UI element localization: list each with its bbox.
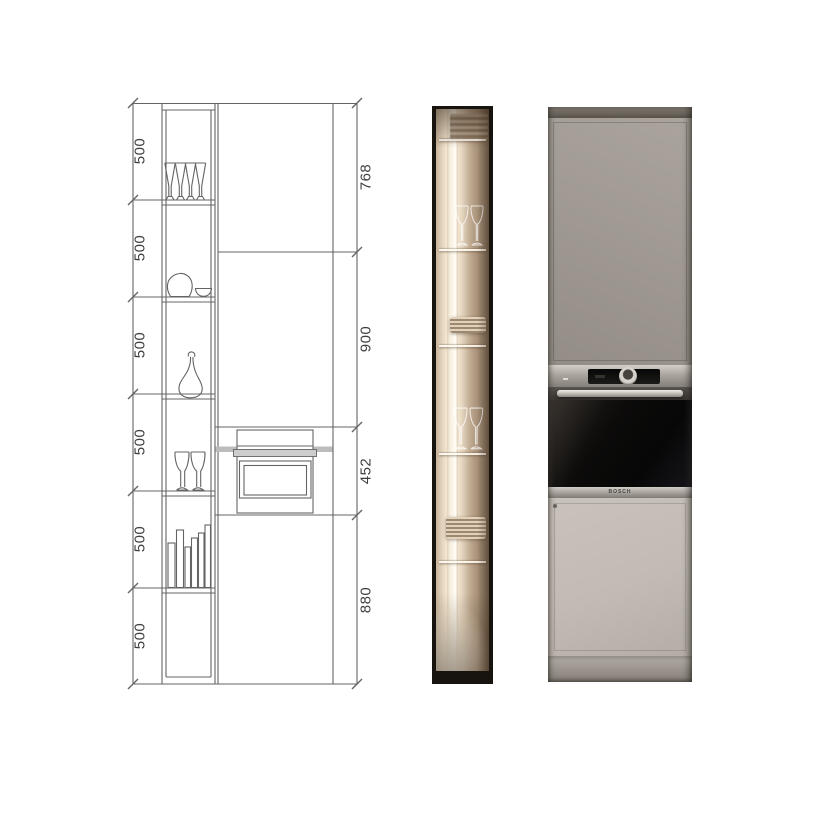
cabinet-plinth <box>548 656 692 682</box>
cabinet-outline <box>215 103 357 684</box>
oven-handle-area <box>548 387 692 400</box>
dim-label-left-2: 500 <box>132 235 149 262</box>
glass-reflection <box>548 400 692 487</box>
books-icon <box>168 525 211 588</box>
upper-cabinet-door <box>548 118 692 365</box>
glass-shelf <box>439 345 486 347</box>
glass-shelf <box>439 453 486 455</box>
lower-cabinet-door <box>548 498 692 656</box>
floor-light-glow <box>436 607 489 671</box>
oven-glass-door <box>548 400 692 487</box>
dim-label-left-4: 500 <box>132 429 149 456</box>
display-column-photo <box>432 106 493 684</box>
oven-cabinet-photo: BOSCH <box>548 107 692 682</box>
dim-label-left-5: 500 <box>132 526 149 553</box>
dim-label-left-3: 500 <box>132 332 149 359</box>
dim-label-right-768: 768 <box>358 164 375 191</box>
display-segment <box>595 375 605 378</box>
oven-brand-strip: BOSCH <box>548 487 692 498</box>
plate-stack <box>450 317 486 333</box>
door-panel-edge <box>554 503 686 651</box>
door-panel-edge <box>553 122 687 361</box>
wine-glasses-icon <box>452 407 486 453</box>
dim-label-right-900: 900 <box>358 326 375 353</box>
dim-label-right-452: 452 <box>358 458 375 485</box>
wine-glasses-icon <box>175 452 205 490</box>
interior-shading <box>436 109 489 671</box>
decanter-icon <box>179 352 202 398</box>
champagne-flutes-icon <box>165 163 206 200</box>
bowl-and-dish-icon <box>167 273 211 296</box>
panel-indicator-light <box>563 378 568 380</box>
stacked-dishes-top <box>450 114 488 140</box>
dim-label-left-1: 500 <box>132 138 149 165</box>
display-frame <box>432 106 493 684</box>
oven-handle-bar <box>557 390 683 397</box>
screenshot-canvas: 500 500 500 500 500 500 768 900 452 880 <box>0 0 840 840</box>
bosch-logo: BOSCH <box>548 490 692 495</box>
cabinet-crown-trim <box>548 107 692 118</box>
elevation-linework <box>0 0 840 840</box>
oven-control-panel <box>548 365 692 387</box>
oven-outline <box>216 430 333 513</box>
wine-glasses-icon <box>454 205 486 249</box>
glass-shelf <box>439 561 486 563</box>
shelf-column-outline <box>133 103 215 684</box>
glass-shelf <box>439 139 486 141</box>
display-interior <box>436 109 489 671</box>
glass-shelf <box>439 249 486 251</box>
led-strip-light <box>447 109 458 671</box>
door-hinge-dot <box>553 504 557 508</box>
oven-knob <box>619 367 637 385</box>
dim-label-left-6: 500 <box>132 623 149 650</box>
plate-stack <box>446 517 486 539</box>
dim-label-right-880: 880 <box>358 587 375 614</box>
